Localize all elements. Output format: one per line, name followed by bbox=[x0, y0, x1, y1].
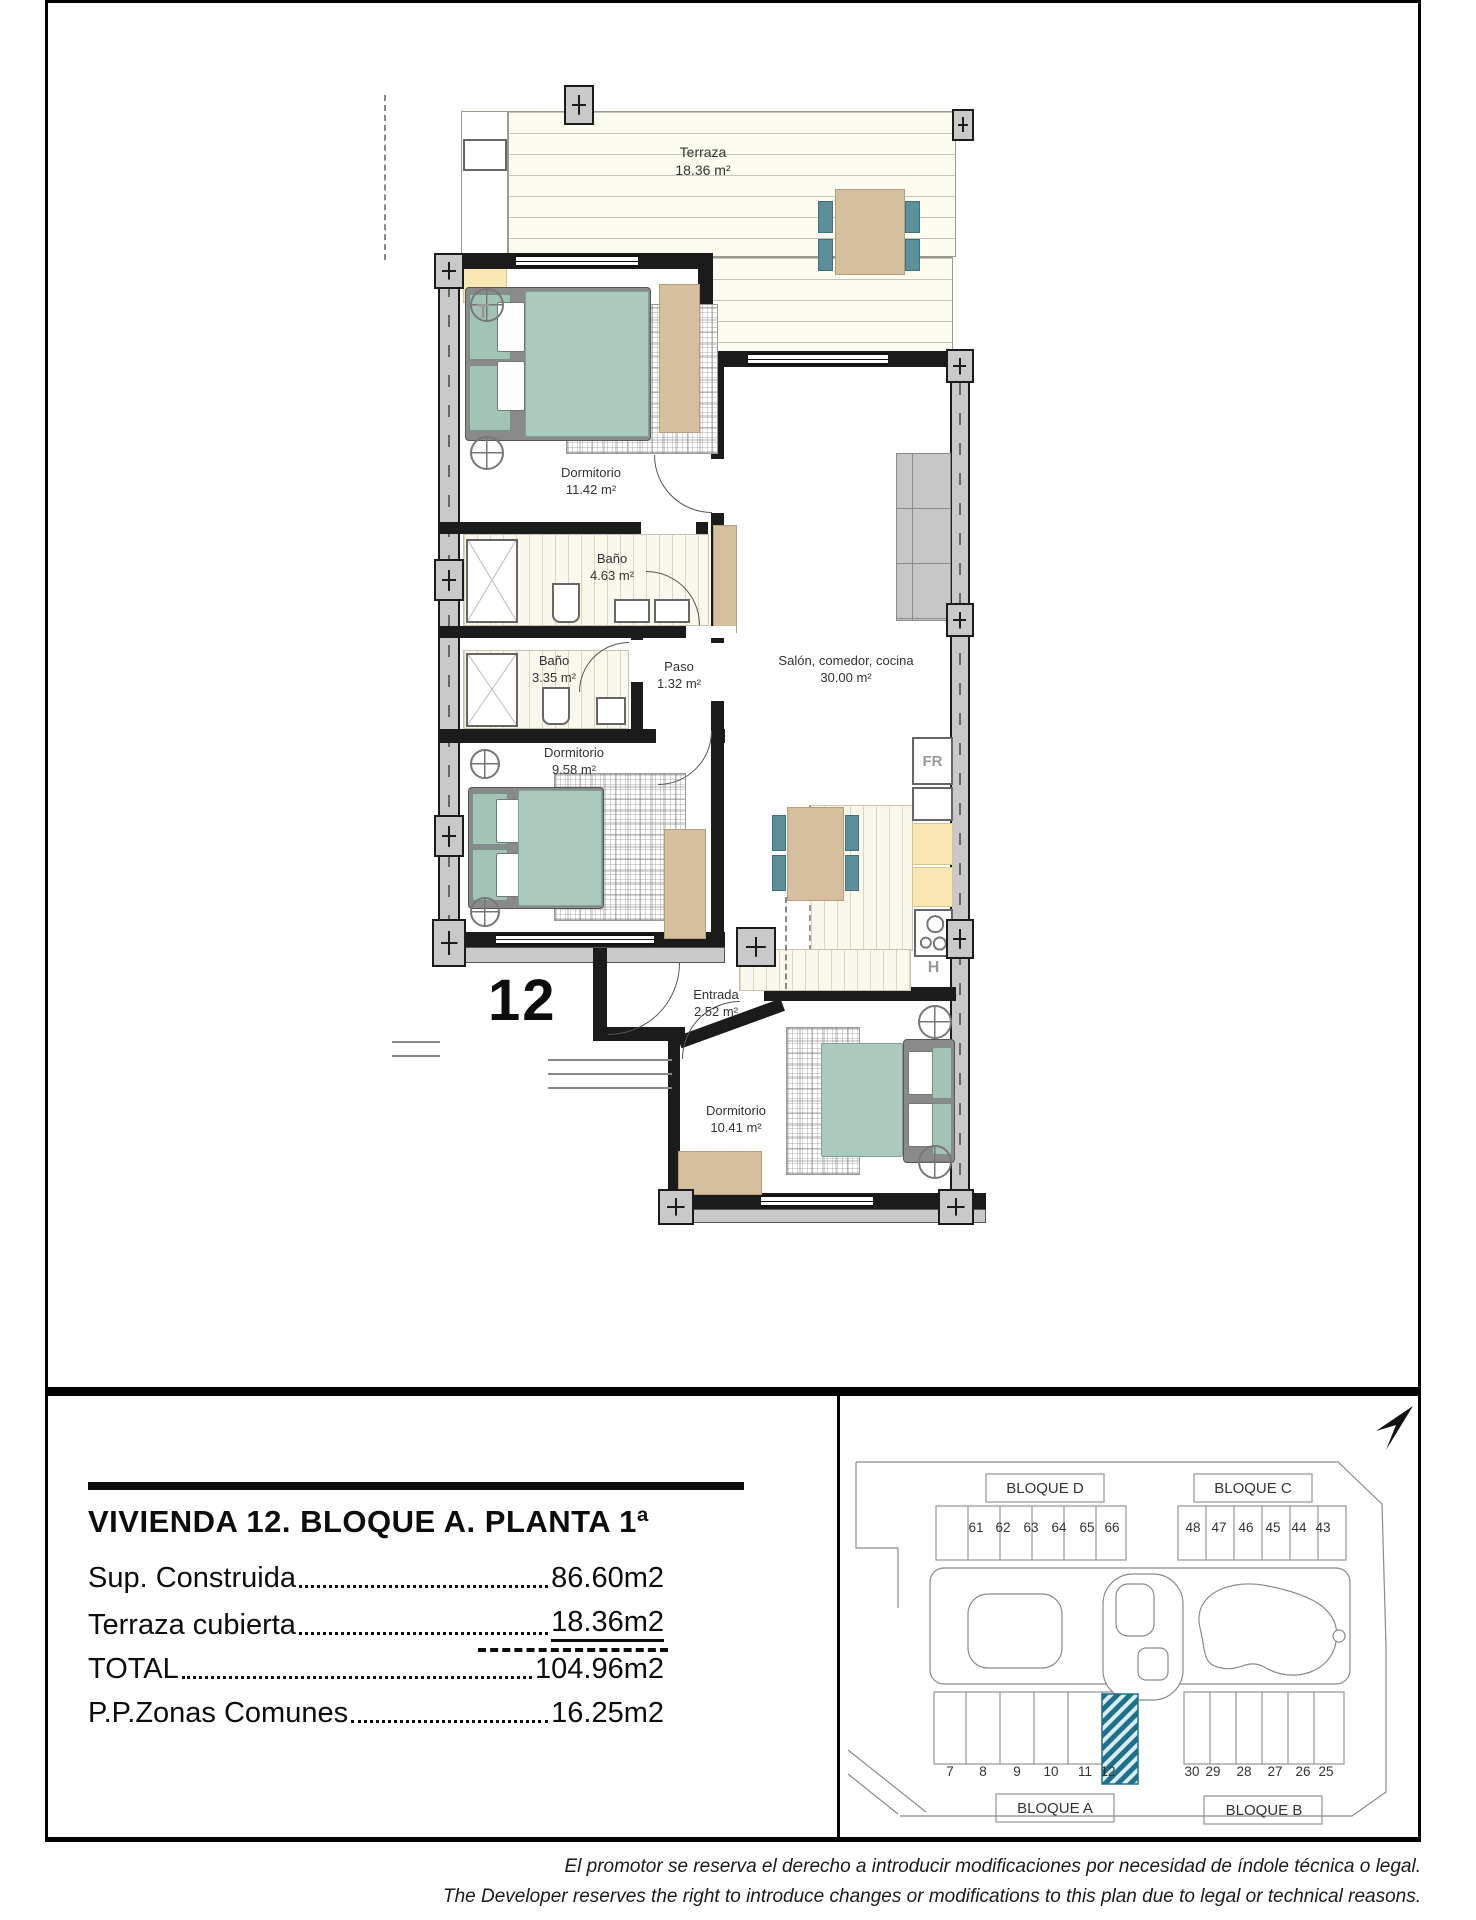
chair bbox=[845, 815, 859, 851]
row-label: Sup. Construida bbox=[88, 1562, 296, 1595]
ceiling-light-symbol bbox=[470, 749, 500, 779]
window bbox=[496, 934, 654, 945]
unit-label: 66 bbox=[1104, 1520, 1119, 1535]
dot-leader bbox=[299, 1632, 548, 1635]
unit-label: 9 bbox=[1013, 1764, 1021, 1779]
unit-label: 25 bbox=[1318, 1764, 1333, 1779]
wardrobe bbox=[664, 829, 706, 939]
unit-label: 61 bbox=[968, 1520, 983, 1535]
title-bar-rule bbox=[88, 1482, 744, 1490]
unit-label: 28 bbox=[1236, 1764, 1251, 1779]
bed-cover bbox=[525, 291, 649, 437]
utility-box bbox=[463, 139, 507, 171]
room-label-entrada: Entrada 2.52 m² bbox=[641, 987, 791, 1021]
window bbox=[761, 1195, 873, 1207]
unit-label: 44 bbox=[1291, 1520, 1307, 1535]
bed-cover bbox=[821, 1043, 903, 1157]
room-area: 10.41 m² bbox=[661, 1120, 811, 1137]
pillar bbox=[736, 927, 776, 967]
dining-table bbox=[787, 807, 844, 901]
dashed-underline bbox=[478, 1648, 668, 1652]
pillar bbox=[434, 815, 464, 857]
party-wall-line bbox=[392, 1041, 440, 1043]
unit-label: 10 bbox=[1043, 1764, 1058, 1779]
chair bbox=[845, 855, 859, 891]
unit-number: 12 bbox=[488, 967, 557, 1034]
ceiling-dash-line bbox=[785, 897, 787, 989]
ceiling-light-symbol bbox=[918, 1145, 952, 1179]
room-label-dormitorio-1: Dormitorio 11.42 m² bbox=[516, 465, 666, 499]
terrace-table bbox=[835, 189, 905, 275]
wall-segment bbox=[440, 626, 708, 638]
unit-label: 8 bbox=[979, 1764, 987, 1779]
pillar bbox=[434, 559, 464, 601]
unit-label: 26 bbox=[1295, 1764, 1310, 1779]
site-amenities bbox=[968, 1574, 1345, 1700]
toilet bbox=[542, 687, 570, 725]
pool bbox=[1199, 1584, 1337, 1675]
table-row: TOTAL 104.96m2 bbox=[88, 1653, 664, 1686]
row-value: 18.36m2 bbox=[551, 1606, 664, 1642]
pillow bbox=[497, 361, 525, 411]
room-label-dormitorio-2: Dormitorio 9.58 m² bbox=[499, 745, 649, 779]
chair bbox=[772, 855, 786, 891]
block-label: BLOQUE D bbox=[1006, 1480, 1084, 1497]
dot-leader bbox=[351, 1720, 548, 1723]
room-area: 18.36 m² bbox=[608, 161, 798, 179]
sheet-footer-box: VIVIENDA 12. BLOQUE A. PLANTA 1ª Sup. Co… bbox=[45, 1390, 1421, 1842]
chair bbox=[772, 815, 786, 851]
unit-label: 27 bbox=[1267, 1764, 1282, 1779]
room-area: 30.00 m² bbox=[746, 670, 946, 687]
room-name: Paso bbox=[604, 659, 754, 676]
terrace-chair bbox=[818, 201, 833, 233]
party-wall-line bbox=[392, 1055, 440, 1057]
pillow bbox=[908, 1051, 934, 1095]
row-label: P.P.Zonas Comunes bbox=[88, 1697, 348, 1730]
sofa bbox=[896, 453, 951, 621]
wall-band bbox=[440, 947, 725, 963]
row-value: 86.60m2 bbox=[551, 1562, 664, 1595]
block-label: BLOQUE C bbox=[1214, 1480, 1292, 1497]
kitchen-sink bbox=[912, 787, 953, 821]
room-name: Terraza bbox=[608, 143, 798, 161]
window bbox=[516, 255, 638, 267]
wall-segment bbox=[711, 701, 724, 745]
sink bbox=[596, 697, 626, 725]
room-label-bano-1: Baño 4.63 m² bbox=[537, 551, 687, 585]
unit-label: 11 bbox=[1078, 1764, 1092, 1779]
terrace-chair bbox=[905, 201, 920, 233]
room-name: Dormitorio bbox=[516, 465, 666, 482]
unit-label: 48 bbox=[1185, 1520, 1200, 1535]
room-name: Dormitorio bbox=[661, 1103, 811, 1120]
dot-leader bbox=[299, 1585, 548, 1588]
fridge: FR bbox=[912, 737, 953, 785]
plan-sheet: T bbox=[0, 0, 1476, 1920]
room-label-paso: Paso 1.32 m² bbox=[604, 659, 754, 693]
block-label: BLOQUE B bbox=[1226, 1802, 1303, 1819]
pillar bbox=[432, 919, 466, 967]
pillar bbox=[564, 85, 594, 125]
row-label: TOTAL bbox=[88, 1653, 179, 1686]
unit-label: 63 bbox=[1023, 1520, 1038, 1535]
room-area: 11.42 m² bbox=[516, 482, 666, 499]
sink bbox=[614, 599, 650, 623]
exterior-step-line bbox=[548, 1073, 672, 1075]
wardrobe bbox=[659, 284, 700, 433]
shower bbox=[466, 539, 518, 623]
pillar bbox=[946, 919, 974, 959]
row-label: Terraza cubierta bbox=[88, 1609, 296, 1642]
fridge-label: FR bbox=[914, 753, 951, 770]
pillar bbox=[946, 349, 974, 383]
terrace-side-strip bbox=[461, 111, 508, 257]
door-opening bbox=[686, 626, 736, 638]
unit-label: 43 bbox=[1315, 1520, 1330, 1535]
dot-leader bbox=[182, 1676, 532, 1679]
terrace-deck bbox=[711, 257, 953, 353]
table-row: Terraza cubierta 18.36m2 bbox=[88, 1606, 664, 1642]
unit-label: 47 bbox=[1211, 1520, 1226, 1535]
terrace-chair bbox=[905, 239, 920, 271]
unit-label: 64 bbox=[1051, 1520, 1067, 1535]
disclaimer: El promotor se reserva el derecho a intr… bbox=[45, 1852, 1421, 1912]
ceiling-light-symbol bbox=[470, 897, 500, 927]
unit-label: 46 bbox=[1238, 1520, 1253, 1535]
hob-label: H bbox=[914, 959, 953, 977]
property-dash-line bbox=[384, 95, 386, 260]
room-label-dormitorio-3: Dormitorio 10.41 m² bbox=[661, 1103, 811, 1137]
sideboard bbox=[713, 525, 737, 633]
ceiling-light-symbol bbox=[470, 436, 504, 470]
table-row: Sup. Construida 86.60m2 bbox=[88, 1562, 664, 1595]
exterior-step-line bbox=[548, 1059, 672, 1061]
bed-headboard-cushion bbox=[932, 1047, 952, 1099]
room-area: 1.32 m² bbox=[604, 676, 754, 693]
disclaimer-en: The Developer reserves the right to intr… bbox=[45, 1882, 1421, 1912]
toilet bbox=[552, 583, 580, 623]
pillar bbox=[658, 1189, 694, 1225]
room-area: 4.63 m² bbox=[537, 568, 687, 585]
room-name: Salón, comedor, cocina bbox=[746, 653, 946, 670]
block-label: BLOQUE A bbox=[1017, 1800, 1093, 1817]
terrace-letter: T bbox=[461, 301, 505, 324]
ceiling-light-symbol bbox=[918, 1005, 952, 1039]
counter bbox=[912, 867, 953, 907]
site-plan: BLOQUE D BLOQUE C BLOQUE A BLOQUE B 61 6… bbox=[840, 1396, 1421, 1842]
room-area: 2.52 m² bbox=[641, 1004, 791, 1021]
door-opening bbox=[641, 522, 696, 534]
north-arrow-icon bbox=[1376, 1406, 1413, 1450]
counter bbox=[912, 823, 953, 865]
pillar bbox=[434, 253, 464, 289]
pillar bbox=[938, 1189, 974, 1225]
exterior-wall-left bbox=[438, 253, 460, 967]
unit-label: 29 bbox=[1205, 1764, 1220, 1779]
wall-segment bbox=[711, 743, 724, 941]
row-value: 16.25m2 bbox=[551, 1697, 664, 1730]
room-label-terraza: Terraza 18.36 m² bbox=[608, 143, 798, 179]
room-name: Baño bbox=[537, 551, 687, 568]
room-area: 9.58 m² bbox=[499, 762, 649, 779]
unit-label: 65 bbox=[1079, 1520, 1094, 1535]
unit-label: 12 bbox=[1100, 1764, 1115, 1779]
table-row: P.P.Zonas Comunes 16.25m2 bbox=[88, 1697, 664, 1730]
door-arc bbox=[658, 731, 712, 785]
bed-cover bbox=[518, 790, 602, 906]
pillow bbox=[908, 1103, 934, 1147]
room-label-salon: Salón, comedor, cocina 30.00 m² bbox=[746, 653, 946, 687]
floor-plan-frame: T bbox=[45, 0, 1421, 1390]
pillar bbox=[952, 109, 974, 141]
disclaimer-es: El promotor se reserva el derecho a intr… bbox=[45, 1852, 1421, 1882]
unit-label: 45 bbox=[1265, 1520, 1280, 1535]
unit-label: 30 bbox=[1184, 1764, 1199, 1779]
exterior-step-line bbox=[548, 1087, 672, 1089]
window bbox=[748, 353, 888, 365]
terrace-chair bbox=[818, 239, 833, 271]
pillar bbox=[946, 603, 974, 637]
row-value: 104.96m2 bbox=[535, 1653, 664, 1686]
room-name: Dormitorio bbox=[499, 745, 649, 762]
unit-label: 62 bbox=[995, 1520, 1010, 1535]
unit-label: 7 bbox=[946, 1764, 954, 1779]
room-name: Entrada bbox=[641, 987, 791, 1004]
page-title: VIVIENDA 12. BLOQUE A. PLANTA 1ª bbox=[88, 1504, 788, 1540]
